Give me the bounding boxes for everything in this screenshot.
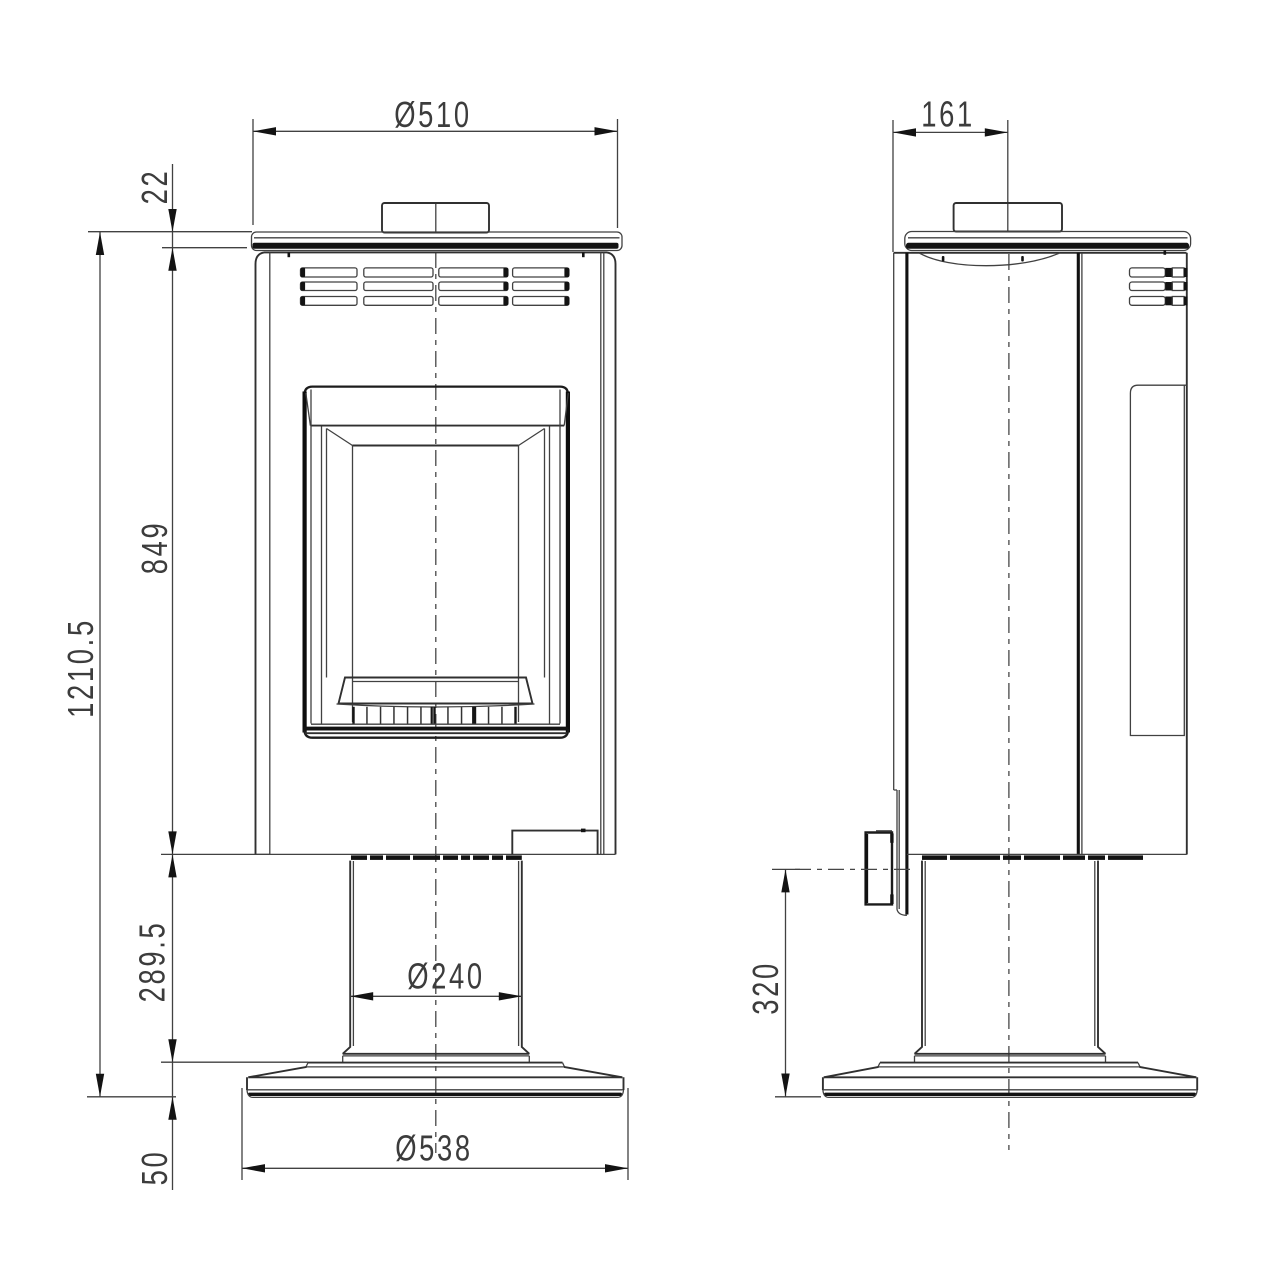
svg-text:Ø240: Ø240 xyxy=(407,956,485,997)
svg-text:849: 849 xyxy=(134,521,175,575)
svg-text:22: 22 xyxy=(134,169,175,205)
svg-text:50: 50 xyxy=(134,1150,175,1186)
svg-text:Ø510: Ø510 xyxy=(394,94,472,135)
svg-text:289.5: 289.5 xyxy=(132,921,173,1003)
svg-text:Ø538: Ø538 xyxy=(395,1128,473,1169)
svg-text:320: 320 xyxy=(745,961,786,1015)
svg-text:1210.5: 1210.5 xyxy=(60,618,101,718)
svg-text:161: 161 xyxy=(921,94,975,135)
